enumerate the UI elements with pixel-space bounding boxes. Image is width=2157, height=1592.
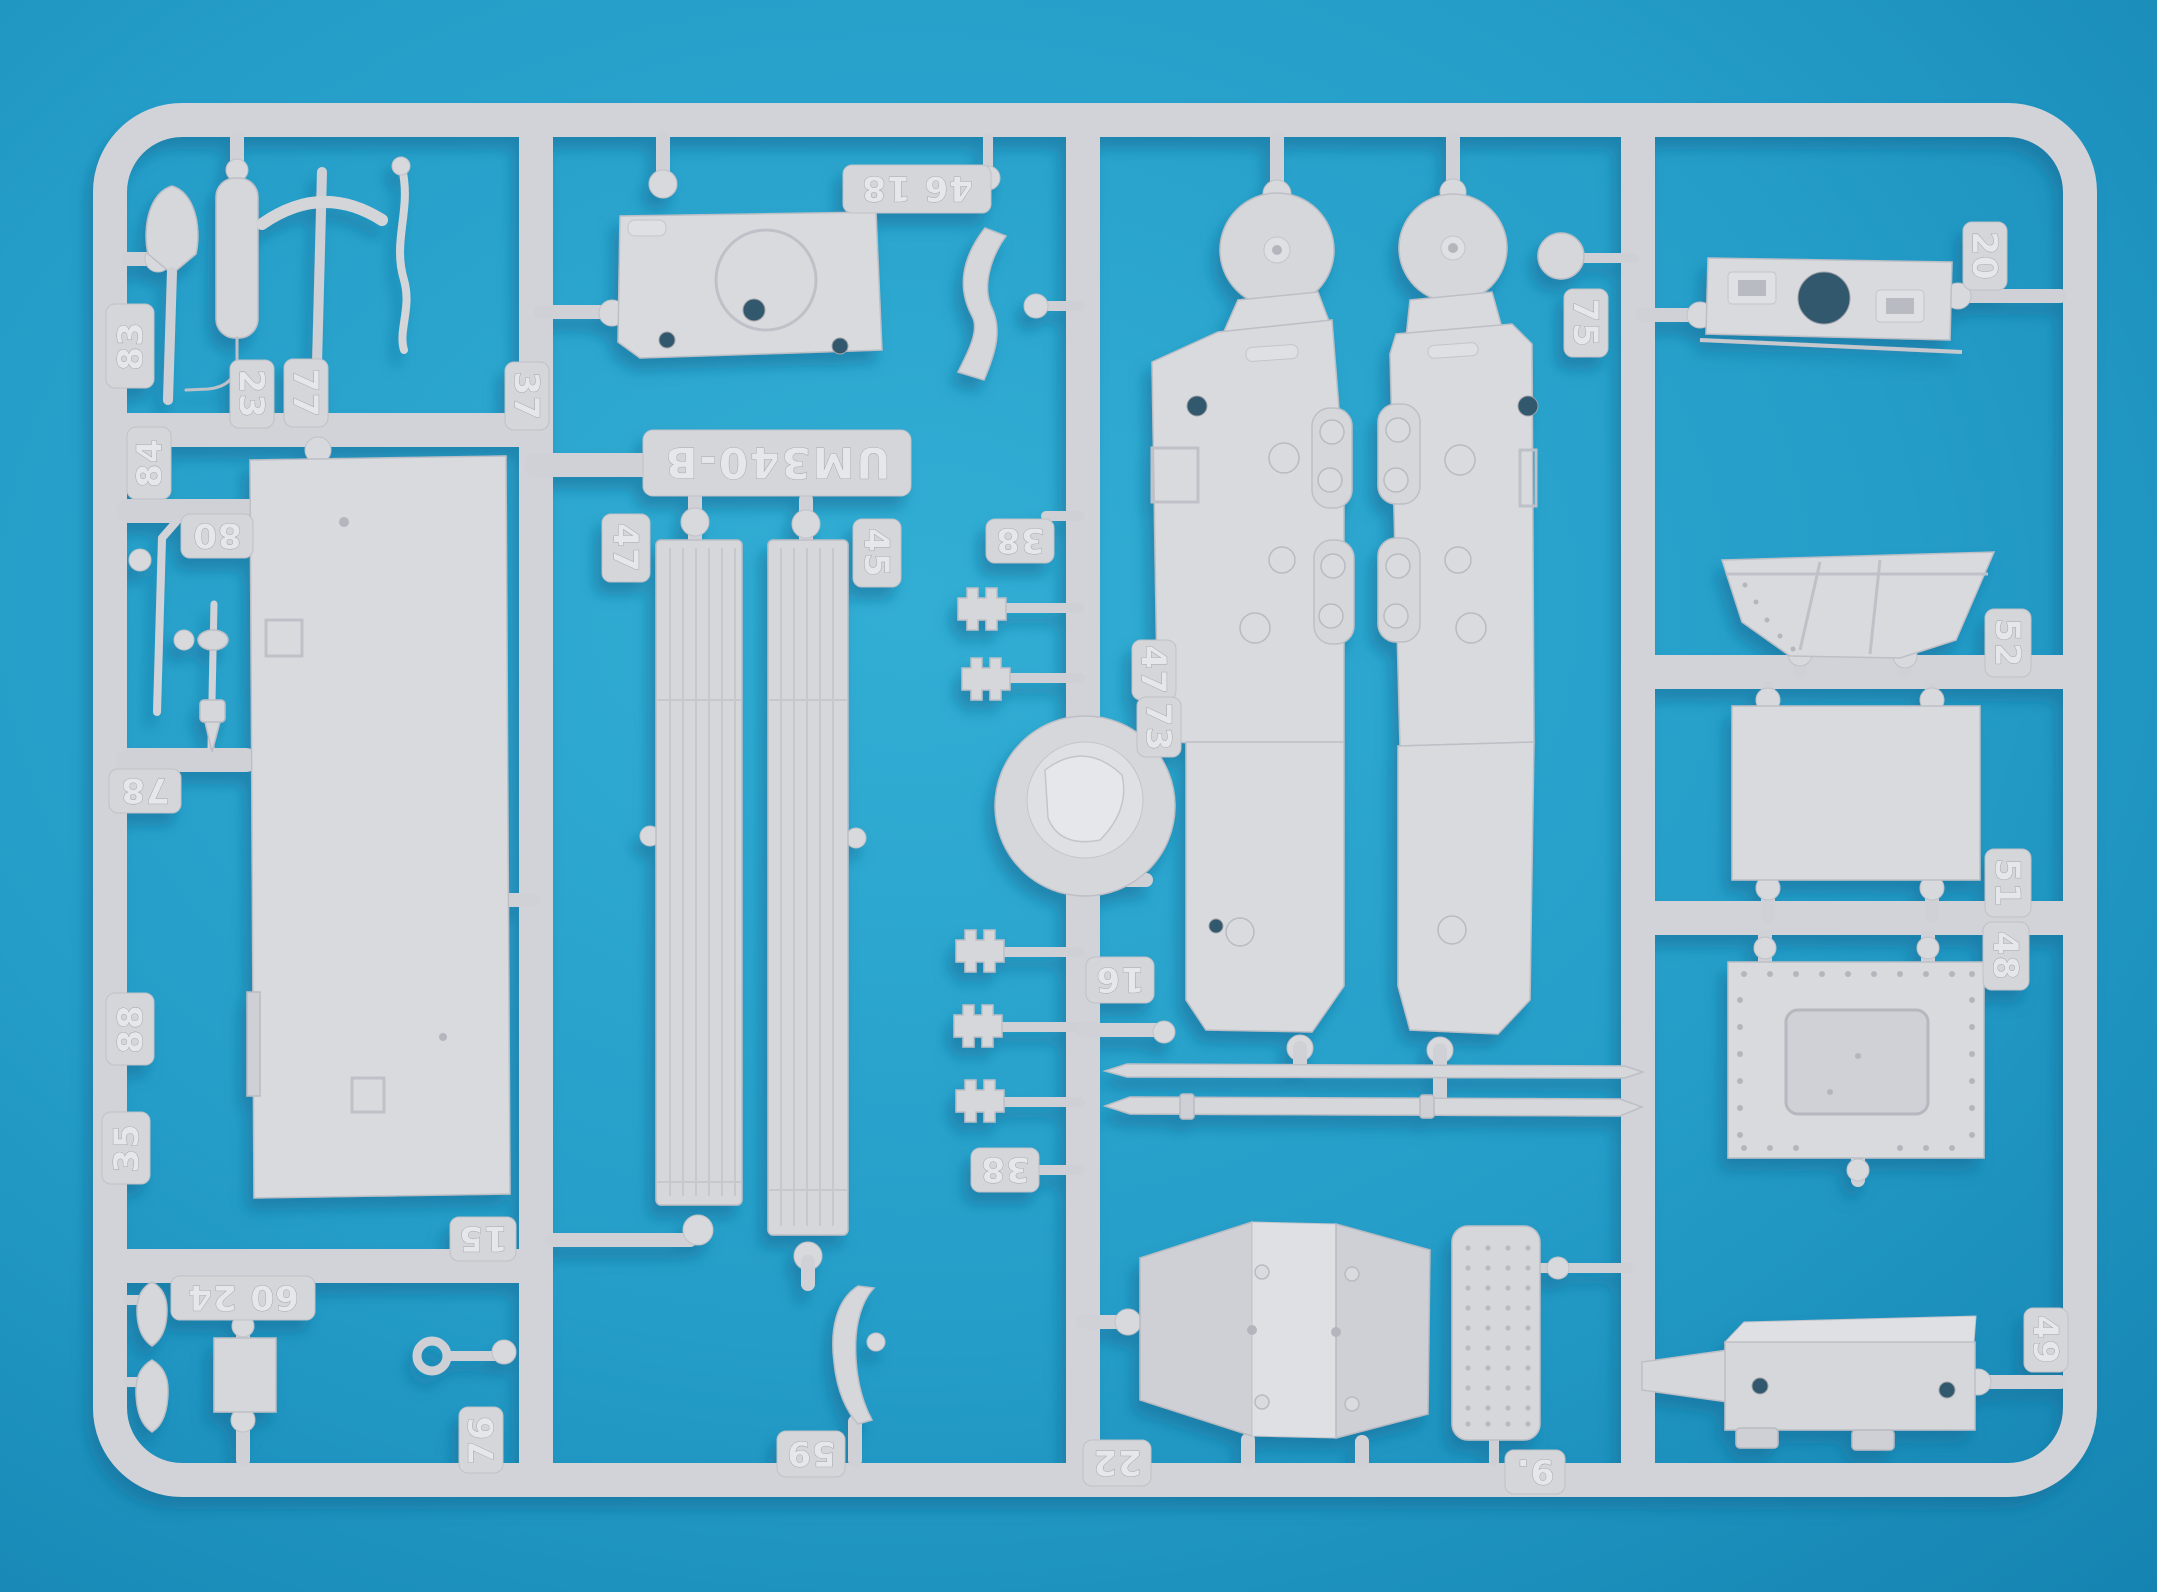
treaded-plank-left-part [656, 540, 742, 1205]
small-disc-part [1538, 233, 1584, 279]
svg-text:35: 35 [107, 1123, 147, 1172]
part-number-tab-37: 37 [505, 362, 549, 430]
treaded-plank-right-part [768, 540, 848, 1235]
svg-text:75: 75 [1565, 298, 1605, 347]
kit-code-label: UM340-B [663, 438, 890, 487]
part-number-tab-48: 48 [1983, 922, 2029, 990]
part-number-tab-15: 15 [450, 1217, 516, 1261]
part-number-tab-78: 78 [109, 769, 181, 813]
svg-text:80: 80 [192, 515, 241, 555]
svg-text:88: 88 [111, 1004, 151, 1053]
part-number-tab-47a: 47 [602, 514, 650, 582]
part-number-tab-84: 84 [127, 427, 171, 499]
svg-text:78: 78 [120, 770, 169, 810]
kit-code-nameplate: UM340-B [643, 430, 911, 496]
flat-plate-part [1732, 706, 1980, 880]
svg-text:76: 76 [462, 1415, 502, 1464]
svg-text:47: 47 [605, 523, 645, 572]
part-number-tab-59: 59 [777, 1431, 845, 1477]
svg-text:52: 52 [1987, 618, 2027, 667]
part-number-tab-16: 16 [1086, 957, 1154, 1003]
svg-text:20: 20 [1964, 231, 2004, 280]
part-number-tab-38a: 38 [986, 519, 1054, 563]
part-number-tab-76: 76 [459, 1407, 503, 1473]
part-number-tab-51: 51 [1985, 849, 2031, 917]
svg-text:46 18: 46 18 [861, 168, 972, 208]
part-number-tab-52: 52 [1985, 609, 2031, 677]
square-plate-part [214, 1338, 276, 1412]
svg-text:49: 49 [2025, 1315, 2065, 1364]
part-number-tab-88: 88 [106, 993, 154, 1065]
sprue-photo-svg: 83 84 80 78 88 35 23 77 [0, 0, 2157, 1592]
part-number-tab-9: 9. [1505, 1450, 1565, 1494]
hull-roof-panel-part [247, 456, 510, 1198]
svg-text:45: 45 [856, 528, 896, 577]
stowage-box-part [1725, 1316, 1976, 1450]
part-number-tab-23: 23 [230, 360, 274, 428]
svg-text:73: 73 [1138, 702, 1178, 751]
part-number-tab-77: 77 [284, 359, 328, 427]
part-number-tab-46-18: 46 18 [843, 165, 991, 213]
svg-text:37: 37 [506, 371, 546, 420]
part-number-tab-80: 80 [181, 514, 253, 558]
sprue-photo: 83 84 80 78 88 35 23 77 [0, 0, 2157, 1592]
svg-text:84: 84 [130, 438, 170, 487]
part-number-tab-60-24: 60 24 [171, 1276, 315, 1320]
svg-text:23: 23 [231, 369, 271, 418]
svg-text:60 24: 60 24 [187, 1277, 298, 1317]
svg-text:9.: 9. [1516, 1451, 1555, 1491]
svg-text:38: 38 [995, 520, 1044, 560]
svg-text:47: 47 [1133, 645, 1173, 694]
perforated-plate-part [1452, 1226, 1540, 1440]
turret-roof-plate-part [618, 212, 882, 358]
svg-text:59: 59 [786, 1433, 835, 1473]
svg-text:51: 51 [1987, 858, 2027, 907]
part-number-tab-22: 22 [1083, 1440, 1151, 1486]
folded-hatch-plate-part [1140, 1222, 1430, 1438]
part-number-tab-45: 45 [853, 519, 901, 587]
part-number-tab-35: 35 [102, 1112, 150, 1184]
svg-text:22: 22 [1092, 1442, 1141, 1482]
part-number-tab-75: 75 [1564, 289, 1608, 357]
part-number-tab-49: 49 [2024, 1308, 2068, 1372]
part-number-tab-20: 20 [1963, 222, 2007, 290]
part-number-tab-83: 83 [106, 304, 154, 388]
part-number-tab-73: 73 [1137, 697, 1181, 757]
svg-text:16: 16 [1095, 959, 1144, 999]
svg-text:15: 15 [458, 1218, 507, 1258]
svg-text:48: 48 [1985, 931, 2025, 980]
svg-text:38: 38 [980, 1149, 1029, 1189]
part-number-tab-47b: 47 [1132, 640, 1176, 700]
riveted-hatch-plate-part [1728, 962, 1984, 1158]
svg-text:77: 77 [285, 368, 325, 417]
tab-label: 83 [111, 321, 151, 370]
part-number-tab-38b: 38 [971, 1148, 1039, 1192]
